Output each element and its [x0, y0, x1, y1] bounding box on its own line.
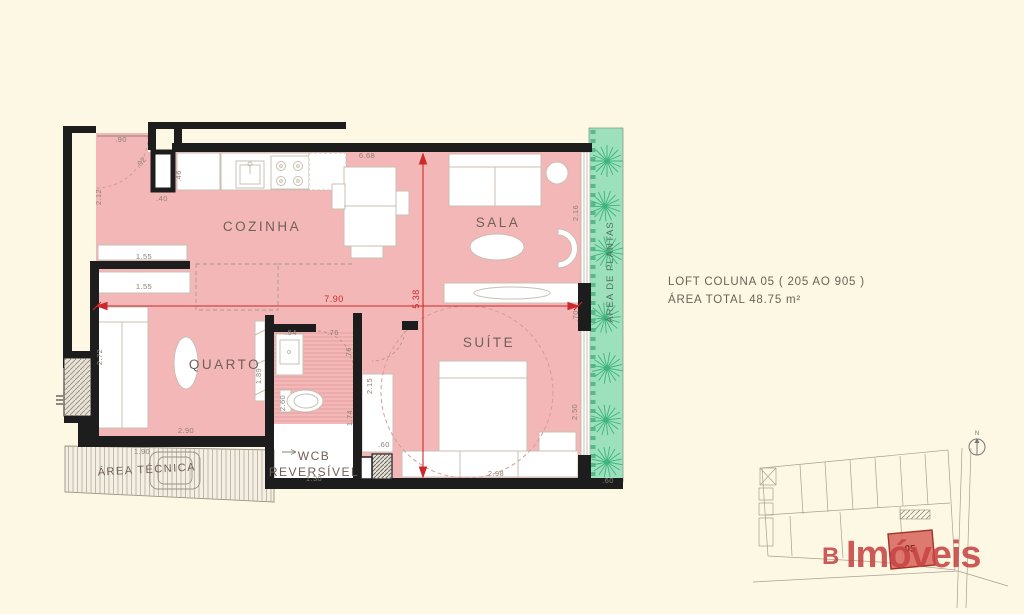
dim-label: 2.72 [95, 349, 104, 365]
hatched-block [900, 510, 930, 519]
drain-ticks [56, 396, 63, 404]
dim-label: 2.90 [178, 426, 194, 435]
dim-label: .90 [115, 135, 127, 144]
dim-label: 2.12 [94, 189, 103, 205]
dim-label: .54 [285, 328, 297, 337]
dim-total-height: 5.38 [411, 289, 421, 309]
room-label-wcb-2: REVERSÍVEL [269, 464, 359, 479]
dim-label: .70 [571, 310, 580, 322]
north-arrow-icon: N [969, 431, 985, 455]
dim-label: 2.50 [570, 404, 579, 420]
room-label-area-plantas: ÁREA DE PLANTAS [605, 221, 616, 322]
side-table [546, 162, 568, 184]
stove-icon [271, 156, 309, 189]
washbasin-icon [276, 334, 303, 375]
elevator-box [759, 468, 776, 546]
logo-name: Imóveis [846, 534, 981, 576]
door-jamb [361, 457, 372, 479]
dim-label: .76 [344, 347, 353, 359]
dim-label: 1.55 [136, 252, 152, 261]
dim-label: 2.16 [571, 205, 580, 221]
floor-plan-page: ÁREA DE PLANTAS [0, 0, 1024, 614]
room-label-cozinha: COZINHA [223, 219, 301, 234]
room-label-sala: SALA [476, 215, 521, 230]
dim-label: .60 [378, 440, 390, 449]
logo-prefix: B [822, 543, 839, 570]
coffee-table [470, 234, 524, 260]
room-label-wcb-1: WCB [298, 449, 331, 463]
dim-label: 2.15 [365, 378, 374, 394]
dim-label: 1.74 [345, 410, 354, 426]
dim-label: 1.90 [134, 447, 150, 456]
fridge [177, 153, 220, 190]
quarto-bed [97, 307, 148, 428]
dim-label: .46 [174, 170, 183, 182]
room-label-quarto: QUARTO [189, 357, 261, 372]
dim-label: 1.55 [136, 282, 152, 291]
dim-label: .76 [327, 328, 339, 337]
dim-label: .60 [602, 476, 614, 485]
brand-logo: B Imóveis [822, 534, 981, 576]
unit-info: LOFT COLUNA 05 ( 205 AO 905 ) ÁREA TOTAL… [668, 276, 865, 306]
dim-label: 2.60 [278, 395, 287, 411]
suite-bed [439, 361, 527, 453]
nightstand [539, 432, 576, 451]
sofa [449, 154, 541, 206]
north-label: N [975, 431, 979, 437]
dim-total-width: 7.90 [324, 294, 344, 304]
unit-title: LOFT COLUNA 05 ( 205 AO 905 ) [668, 276, 865, 288]
unit-area-total: ÁREA TOTAL 48.75 m² [668, 293, 801, 306]
dim-label: .40 [156, 194, 168, 203]
floor-plan-drawing: ÁREA DE PLANTAS [0, 0, 1024, 614]
dim-label: 2.98 [488, 469, 504, 478]
dim-label: 6.68 [359, 151, 375, 160]
room-label-suite: SUÍTE [463, 335, 515, 350]
sink-icon [236, 161, 264, 188]
tv-console [444, 283, 581, 303]
key-plan: 05 [753, 448, 1008, 608]
column [153, 152, 173, 190]
